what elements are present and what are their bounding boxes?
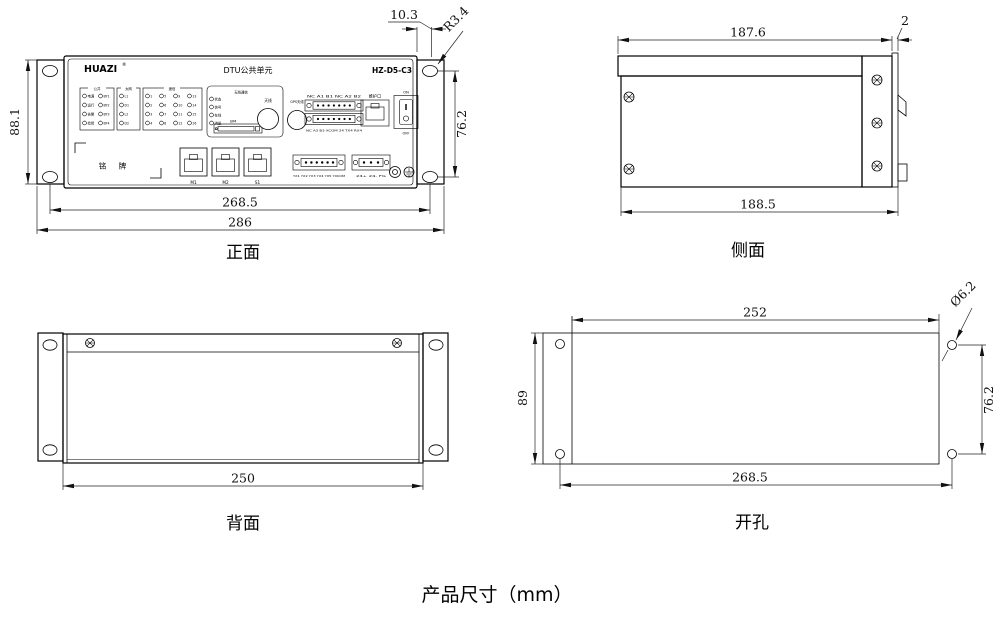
led-group-header: 公共: [94, 86, 101, 91]
led-label: BY2: [104, 103, 110, 107]
led-label: 2: [150, 103, 152, 107]
rj45-port-m2: [212, 148, 239, 176]
dim-text-hole-spacing-h: 268.5: [732, 470, 768, 485]
led-label: 流量: [215, 120, 222, 125]
connector-pins: [317, 118, 351, 120]
led-label: 5: [164, 94, 166, 98]
led-label: L2: [125, 112, 129, 116]
led: [120, 121, 124, 125]
led-label: 1: [150, 94, 152, 98]
mounting-hole: [429, 445, 443, 455]
ground-symbol-icon: [404, 167, 414, 177]
gps-antenna-label: GPS天线: [290, 99, 304, 104]
dim-10-3: 10.3: [388, 7, 446, 57]
led-label: 6: [164, 103, 166, 107]
connector-pins: [363, 161, 379, 163]
led-group-yaoxin: 遥信 1 2 3 4 5 6 7 8 9 10 11 12 13 14 15 1…: [143, 86, 202, 131]
led-label: D2: [125, 121, 129, 125]
rj45-port-s1: [244, 148, 271, 176]
mounting-hole: [429, 340, 443, 350]
connector-screw: [339, 160, 343, 164]
wireless-header: 无线通信: [234, 90, 248, 95]
led: [120, 94, 124, 98]
led: [210, 105, 214, 109]
led: [146, 103, 150, 107]
sim-slot-inner: [218, 127, 254, 132]
side-view-label: 侧面: [731, 241, 765, 261]
front-left-ear: [37, 60, 64, 184]
side-view: 187.6 2 188.5 侧面: [618, 13, 912, 261]
screw-icon: [872, 75, 882, 85]
model-number: HZ-D5-C3: [372, 66, 412, 75]
rj45-jack: [185, 159, 203, 172]
terminal-row-top-labels: NC A1 B1 NC A2 B2: [307, 95, 361, 99]
connector-screw: [353, 160, 357, 164]
screw-icon: [624, 164, 634, 174]
led: [160, 112, 164, 116]
panel-title: DTU公共单元: [224, 65, 273, 75]
dim-88-1: 88.1: [7, 60, 37, 184]
back-right-ear: [423, 333, 448, 461]
led: [160, 94, 164, 98]
led-label: 11: [178, 112, 182, 116]
led: [146, 121, 150, 125]
led-label: 7: [164, 112, 166, 116]
dim-text-hole-width: 268.5: [222, 195, 258, 210]
connector-pins: [305, 161, 334, 163]
sim-eject: [256, 127, 260, 132]
dim-text-ear: 10.3: [390, 7, 418, 22]
led-group-header: 遥信: [169, 86, 176, 91]
led: [210, 121, 214, 125]
rj45-jack: [249, 159, 267, 172]
led: [174, 94, 178, 98]
serial-terminals: NC A1 B1 NC A2 B2 NC A3 B3 XCOM 24 TX4 R…: [305, 95, 363, 133]
led: [99, 103, 103, 107]
dim-text-cutout-height: 89: [515, 390, 530, 406]
dim-text-radius: R3.4: [440, 3, 471, 34]
back-left-ear: [38, 333, 63, 461]
hole-grommet: [390, 167, 401, 178]
led-label: 在线: [215, 112, 222, 117]
dim-187-6: 187.6: [618, 25, 892, 55]
dim-text-plate: 2: [901, 13, 909, 28]
screw-icon: [393, 339, 402, 348]
led-label: 4: [150, 121, 152, 125]
led: [188, 94, 192, 98]
rj45-port: [361, 100, 389, 126]
power-switch: ON OFF: [394, 91, 418, 136]
switch-off-label: OFF: [403, 132, 410, 136]
led: [99, 112, 103, 116]
side-body: [621, 76, 862, 187]
led-label: D1: [125, 103, 129, 107]
drill-hole: [948, 450, 957, 459]
led-group-common: 公共 电源 运行 告警 检修 BY1 BY2 BY3 BY4: [80, 86, 114, 131]
led-label: 检修: [88, 120, 95, 125]
dimension-drawing: HUAZI ® DTU公共单元 HZ-D5-C3 公共 电源 运行 告警 检修 …: [0, 0, 1000, 630]
maintenance-port-label: 维护口: [369, 93, 382, 100]
connector-screw: [307, 103, 311, 107]
yx-pin-labels: YX1 YX2 YX3 YX4 YX5 YXCOM: [293, 174, 345, 178]
dim-text-back-width: 250: [231, 471, 255, 486]
cutout-rect: [543, 333, 939, 464]
back-view: 250 背面: [38, 333, 448, 534]
dim-252: 252: [572, 305, 939, 334]
screw-icon: [86, 339, 95, 348]
led: [146, 112, 150, 116]
rj45-tab: [371, 104, 379, 109]
led: [188, 121, 192, 125]
switch-bezel: [394, 96, 418, 129]
nameplate-corner: [75, 143, 86, 153]
switch-o-mark: [403, 116, 408, 121]
led-label: 16: [192, 121, 196, 125]
port-label: M1: [190, 180, 197, 185]
nameplate-area: 铭 牌: [75, 143, 161, 178]
power-pin-labels: 24+ 24- FG: [356, 174, 387, 178]
led: [188, 103, 192, 107]
port-label: M2: [222, 180, 229, 185]
led: [99, 94, 103, 98]
led-label: 运行: [88, 102, 95, 107]
led-label: 9: [178, 94, 180, 98]
connector-profile: [898, 164, 907, 181]
led: [120, 103, 124, 107]
cutout-view-label: 开孔: [735, 513, 769, 533]
back-view-label: 背面: [226, 514, 260, 534]
dim-89: 89: [515, 333, 543, 464]
front-view: HUAZI ® DTU公共单元 HZ-D5-C3 公共 电源 运行 告警 检修 …: [7, 3, 472, 263]
toggle-switch-profile: [898, 95, 906, 116]
led-label: BY4: [104, 121, 110, 125]
mounting-hole: [423, 66, 438, 77]
led-label: BY3: [104, 112, 110, 116]
led: [160, 121, 164, 125]
hole-grommet-inner: [393, 170, 398, 175]
led: [174, 121, 178, 125]
led-label: 10: [178, 103, 182, 107]
antenna-label: 天线: [264, 98, 272, 103]
front-right-ear: [417, 60, 444, 184]
sim-slot-screw: [215, 128, 217, 130]
dim-text-hole-height: 76.2: [454, 110, 469, 138]
screw-icon: [872, 161, 882, 171]
mounting-hole: [43, 172, 58, 183]
dim-76-2-front: 76.2: [438, 71, 469, 177]
led-label: 15: [192, 112, 196, 116]
led-label: 告警: [88, 111, 95, 116]
connector-screw: [307, 117, 311, 121]
dim-text-height: 88.1: [7, 108, 22, 136]
led: [83, 121, 87, 125]
dim-76-2-cutout: 76.2: [958, 345, 996, 454]
led-label: BY1: [104, 94, 110, 98]
power-connector: 24+ 24- FG: [352, 155, 390, 178]
sheet-title: 产品尺寸（mm）: [421, 584, 572, 606]
dim-text-side-bottom: 188.5: [740, 197, 776, 212]
led: [83, 94, 87, 98]
led-label: 电源: [88, 93, 95, 98]
led: [120, 112, 124, 116]
led: [188, 112, 192, 116]
connector-screw: [295, 160, 299, 164]
connector-pins: [317, 104, 351, 106]
dim-r3-4: R3.4: [438, 3, 472, 64]
led-label: L1: [125, 94, 129, 98]
led: [146, 94, 150, 98]
connector-screw: [357, 117, 361, 121]
switch-on-label: ON: [403, 91, 409, 95]
screw-icon: [872, 118, 882, 128]
dim-250: 250: [63, 463, 423, 490]
connector-screw: [384, 160, 388, 164]
nameplate-label: 铭 牌: [99, 161, 131, 171]
screw-icon: [624, 92, 634, 102]
led-label: 14: [192, 103, 196, 107]
connector-screw: [357, 103, 361, 107]
led-group-ethernet: 太网 L1 D1 L2 D2: [117, 86, 140, 131]
led: [210, 113, 214, 117]
drill-hole: [556, 450, 565, 459]
dim-hole-dia: Ø6.2: [942, 278, 979, 361]
port-label: S1: [255, 180, 261, 185]
mounting-hole: [43, 340, 57, 350]
led-group-wireless: 无线通信 状态 信号 在线 流量 SIM 天线: [207, 86, 283, 137]
antenna-connector: [258, 109, 279, 130]
led-group-header: 太网: [125, 86, 132, 91]
drill-hole: [556, 340, 565, 349]
terminal-row-bottom-labels: NC A3 B3 XCOM 24 TX4 RX4: [306, 129, 362, 133]
back-body: [63, 334, 423, 463]
nameplate-corner: [150, 168, 161, 178]
led: [83, 103, 87, 107]
dim-text-cutout-width: 252: [743, 305, 767, 320]
drill-hole: [948, 341, 957, 350]
dim-text-hole-spacing-v: 76.2: [981, 386, 996, 414]
led: [160, 103, 164, 107]
led: [83, 112, 87, 116]
led: [174, 112, 178, 116]
led: [99, 121, 103, 125]
cutout-view: 252 Ø6.2 89 76.2 268.5 开孔: [515, 278, 996, 533]
side-front-plate: [892, 53, 898, 187]
dim-text-side-top: 187.6: [730, 25, 766, 40]
dim-text-hole-dia: Ø6.2: [947, 278, 979, 310]
led-label: 状态: [215, 96, 222, 101]
dim-188-5: 188.5: [621, 187, 898, 216]
registered-mark: ®: [122, 61, 127, 68]
dim-2: 2: [897, 13, 912, 51]
led-label: 8: [164, 121, 166, 125]
led-label: 3: [150, 112, 152, 116]
mounting-hole: [43, 445, 57, 455]
gps-antenna-connector: [288, 111, 307, 130]
maintenance-port: 维护口: [361, 93, 389, 127]
dim-268-5-cutout: 268.5: [560, 459, 952, 489]
led-label: 信号: [215, 104, 222, 109]
dim-text-width: 286: [228, 215, 252, 230]
switch-rocker: [400, 100, 413, 125]
rj45-jack: [217, 159, 235, 172]
side-front-panel: [862, 56, 892, 187]
mounting-hole: [43, 66, 58, 77]
rj45-port-m1: [180, 148, 207, 176]
product-dimension-sheet: HUAZI ® DTU公共单元 HZ-D5-C3 公共 电源 运行 告警 检修 …: [0, 0, 1000, 630]
front-view-label: 正面: [226, 243, 260, 263]
brand-logo: HUAZI: [84, 64, 117, 75]
rj45-jack: [366, 107, 384, 120]
led-label: 12: [178, 121, 182, 125]
led: [174, 103, 178, 107]
sim-label: SIM: [230, 120, 236, 124]
led-label: 13: [192, 94, 196, 98]
ethernet-ports: M1 M2 S1: [180, 148, 271, 185]
yx-connector: YX1 YX2 YX3 YX4 YX5 YXCOM: [293, 155, 345, 178]
side-top-lip: [618, 56, 862, 76]
led: [210, 97, 214, 101]
mounting-hole: [423, 172, 438, 183]
